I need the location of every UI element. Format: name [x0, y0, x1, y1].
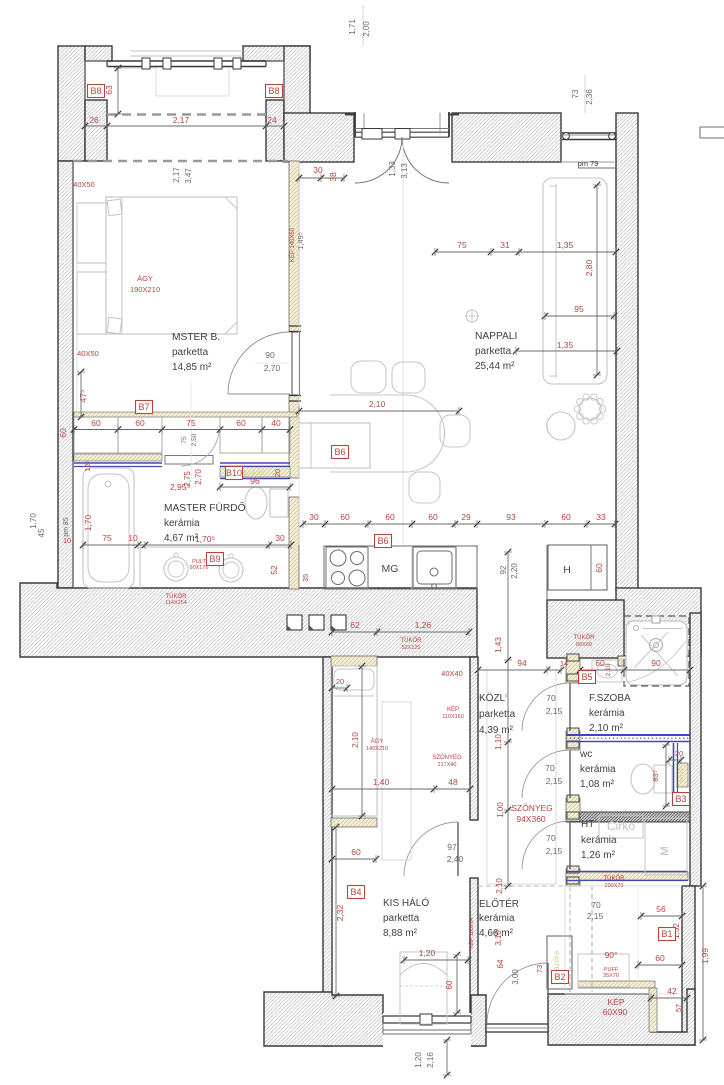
svg-text:60: 60 [91, 418, 101, 428]
svg-text:96: 96 [250, 476, 260, 486]
svg-text:140X210: 140X210 [366, 746, 388, 752]
svg-text:38: 38 [328, 172, 338, 182]
svg-text:MSTER B.: MSTER B. [172, 332, 220, 343]
svg-text:B2: B2 [554, 972, 565, 982]
svg-text:parketta: parketta [172, 347, 209, 358]
svg-text:64: 64 [496, 959, 505, 968]
svg-text:B5: B5 [581, 672, 592, 682]
svg-text:14: 14 [560, 659, 568, 668]
svg-text:60: 60 [561, 512, 571, 522]
svg-text:57: 57 [674, 1004, 683, 1012]
svg-text:60: 60 [351, 847, 361, 857]
svg-text:KÖZLⁱ: KÖZLⁱ [479, 692, 507, 704]
svg-text:83⁵: 83⁵ [651, 770, 660, 781]
svg-text:tartály: tartály [679, 767, 685, 782]
svg-text:2,40: 2,40 [447, 854, 464, 864]
svg-text:75: 75 [181, 436, 188, 444]
svg-text:2,15: 2,15 [587, 911, 604, 921]
svg-text:2,32: 2,32 [335, 904, 345, 921]
svg-text:2,70: 2,70 [264, 363, 281, 373]
svg-text:2,10: 2,10 [495, 878, 504, 894]
svg-text:KÉP 100X64: KÉP 100X64 [468, 917, 475, 948]
svg-text:1,99: 1,99 [701, 948, 710, 964]
svg-text:97: 97 [447, 842, 457, 852]
svg-text:1,40: 1,40 [373, 777, 390, 787]
svg-text:1,49⁵: 1,49⁵ [296, 232, 305, 250]
svg-text:pm 85: pm 85 [63, 517, 70, 537]
svg-text:60: 60 [428, 512, 438, 522]
svg-text:2,15: 2,15 [546, 846, 563, 856]
svg-text:MG: MG [382, 563, 399, 575]
svg-text:60: 60 [655, 953, 665, 963]
svg-text:3,00: 3,00 [511, 969, 520, 985]
svg-text:SZŐNYEG: SZŐNYEG [511, 803, 553, 813]
svg-text:52: 52 [269, 565, 279, 575]
svg-text:parketta: parketta [383, 913, 420, 924]
svg-text:2,10: 2,10 [369, 399, 386, 409]
svg-text:90: 90 [265, 350, 275, 360]
svg-text:33: 33 [596, 512, 606, 522]
svg-text:200X70: 200X70 [605, 883, 624, 889]
svg-text:kerámia: kerámia [479, 913, 515, 924]
svg-text:92: 92 [499, 565, 508, 574]
svg-text:20: 20 [273, 469, 282, 477]
svg-text:TÜKÖR: TÜKÖR [574, 634, 596, 641]
svg-text:2,17: 2,17 [173, 115, 190, 125]
svg-text:20: 20 [675, 749, 683, 758]
svg-text:40: 40 [271, 418, 281, 428]
svg-text:B6: B6 [377, 536, 388, 546]
svg-text:2,70: 2,70 [194, 469, 203, 485]
svg-text:1,35: 1,35 [557, 340, 574, 350]
svg-text:1,70: 1,70 [83, 514, 93, 531]
svg-text:1,35: 1,35 [557, 240, 574, 250]
svg-text:gipszkart.: gipszkart. [240, 471, 266, 477]
svg-text:TÜKÖR: TÜKÖR [401, 637, 423, 644]
svg-text:parketta: parketta [475, 346, 512, 357]
svg-text:70: 70 [591, 900, 601, 910]
svg-text:2,36: 2,36 [585, 89, 594, 105]
svg-text:2,10: 2,10 [605, 663, 612, 676]
svg-text:ELŐTÉR: ELŐTÉR [479, 896, 519, 910]
svg-text:62: 62 [350, 620, 360, 630]
svg-text:kerámia: kerámia [164, 518, 200, 529]
svg-text:60X90: 60X90 [603, 1007, 628, 1017]
svg-text:B6: B6 [334, 447, 345, 457]
svg-text:kerámia: kerámia [581, 835, 617, 846]
svg-text:73: 73 [571, 89, 580, 98]
svg-text:35: 35 [301, 574, 310, 582]
svg-text:42: 42 [667, 986, 677, 996]
svg-text:1,20: 1,20 [419, 948, 436, 958]
svg-text:HT: HT [581, 819, 594, 830]
svg-text:KÉP: KÉP [607, 997, 624, 1007]
svg-text:B3: B3 [675, 794, 686, 804]
svg-text:52X125: 52X125 [402, 645, 421, 651]
svg-text:1,08 m²: 1,08 m² [580, 779, 615, 790]
svg-text:26: 26 [89, 115, 99, 125]
svg-text:94X360: 94X360 [516, 814, 546, 824]
svg-text:35X70: 35X70 [603, 973, 619, 979]
svg-text:20: 20 [336, 677, 344, 686]
svg-text:10: 10 [63, 536, 71, 545]
svg-text:25,44 m²: 25,44 m² [475, 361, 515, 372]
svg-text:ÁGY: ÁGY [137, 274, 153, 283]
svg-text:4,66 m²: 4,66 m² [479, 928, 514, 939]
svg-text:80X60: 80X60 [576, 642, 592, 648]
svg-text:217X40: 217X40 [438, 762, 457, 768]
svg-text:F.SZOBA: F.SZOBA [589, 693, 631, 704]
svg-text:8,88 m²: 8,88 m² [383, 928, 418, 939]
svg-text:ÁGY: ÁGY [371, 738, 384, 745]
svg-text:40X40: 40X40 [441, 669, 463, 678]
svg-text:2,10 m²: 2,10 m² [589, 723, 624, 734]
svg-text:2,15: 2,15 [546, 776, 563, 786]
svg-text:60: 60 [595, 658, 605, 668]
svg-text:KÉP 140X60: KÉP 140X60 [289, 227, 296, 262]
svg-text:KÉP: KÉP [447, 706, 459, 713]
svg-text:1,70⁵: 1,70⁵ [195, 534, 215, 544]
svg-text:1,26: 1,26 [415, 620, 432, 630]
svg-text:73: 73 [535, 965, 544, 973]
svg-text:70: 70 [546, 833, 556, 843]
svg-text:2,50: 2,50 [191, 433, 198, 446]
svg-text:2,17: 2,17 [172, 167, 181, 183]
svg-text:110X160: 110X160 [442, 714, 464, 720]
svg-text:wc: wc [579, 749, 592, 760]
svg-text:B9: B9 [209, 554, 220, 564]
svg-text:NAPPALI: NAPPALI [475, 331, 517, 342]
svg-text:75: 75 [457, 240, 467, 250]
svg-text:B10: B10 [226, 468, 242, 478]
svg-text:29: 29 [461, 512, 471, 522]
svg-text:SZŐNYEG: SZŐNYEG [432, 754, 462, 761]
svg-text:B7: B7 [138, 402, 149, 412]
svg-text:90°: 90° [605, 950, 618, 960]
svg-text:60: 60 [385, 512, 395, 522]
svg-text:47⁵: 47⁵ [78, 390, 88, 403]
svg-text:70: 70 [546, 693, 556, 703]
svg-text:63: 63 [104, 85, 114, 95]
svg-text:1,26 m²: 1,26 m² [581, 850, 616, 861]
svg-text:B4: B4 [350, 887, 361, 897]
svg-text:4,39 m²: 4,39 m² [479, 725, 514, 736]
svg-text:H: H [563, 564, 571, 576]
svg-text:kerámia: kerámia [580, 764, 616, 775]
svg-text:60: 60 [445, 980, 454, 989]
svg-text:1,10: 1,10 [494, 734, 503, 750]
svg-text:KIS HÁLÓ: KIS HÁLÓ [383, 896, 429, 909]
svg-text:parketta: parketta [479, 709, 516, 720]
svg-text:kerámia: kerámia [589, 708, 625, 719]
svg-text:B8: B8 [90, 86, 101, 96]
svg-text:30: 30 [313, 165, 323, 175]
svg-text:56: 56 [656, 904, 666, 914]
svg-text:24: 24 [267, 115, 277, 125]
svg-text:60: 60 [58, 428, 68, 438]
svg-text:31: 31 [500, 240, 510, 250]
svg-text:2,15: 2,15 [546, 706, 563, 716]
svg-text:1,00: 1,00 [496, 802, 505, 818]
svg-text:2,16: 2,16 [426, 1052, 435, 1068]
svg-text:40X50: 40X50 [77, 349, 99, 358]
svg-text:45: 45 [37, 528, 46, 537]
svg-text:93: 93 [506, 512, 516, 522]
svg-text:95: 95 [574, 304, 584, 314]
svg-text:2,00: 2,00 [362, 21, 371, 37]
svg-text:1,71: 1,71 [348, 19, 357, 35]
svg-text:B8: B8 [268, 86, 279, 96]
svg-text:pm 79: pm 79 [578, 159, 599, 168]
svg-text:70: 70 [545, 763, 555, 773]
svg-text:114X254: 114X254 [165, 600, 187, 606]
svg-text:4,67 m²: 4,67 m² [164, 533, 199, 544]
svg-text:3,47: 3,47 [184, 168, 193, 184]
svg-text:B1: B1 [661, 929, 672, 939]
svg-text:2,75: 2,75 [183, 471, 192, 487]
svg-text:90: 90 [651, 658, 661, 668]
svg-text:60: 60 [236, 418, 246, 428]
svg-text:1,70: 1,70 [29, 513, 38, 529]
svg-text:1,43: 1,43 [494, 637, 503, 653]
svg-text:2,10: 2,10 [351, 732, 360, 748]
svg-text:190X210: 190X210 [130, 285, 160, 294]
svg-text:1,33: 1,33 [388, 161, 397, 177]
svg-text:12⁵: 12⁵ [83, 460, 92, 471]
svg-text:14,85 m²: 14,85 m² [172, 362, 212, 373]
svg-text:MASTER FÜRDŐ: MASTER FÜRDŐ [164, 500, 246, 514]
svg-text:48: 48 [448, 777, 458, 787]
svg-text:TÜKÖR: TÜKÖR [166, 593, 188, 600]
svg-text:40X50: 40X50 [73, 180, 95, 189]
svg-text:1,20: 1,20 [414, 1052, 423, 1068]
svg-text:Cirko: Cirko [607, 819, 635, 833]
svg-text:90X176: 90X176 [190, 565, 209, 571]
svg-text:10: 10 [128, 533, 138, 543]
svg-text:60: 60 [340, 512, 350, 522]
svg-text:75: 75 [186, 418, 196, 428]
svg-text:30: 30 [275, 533, 285, 543]
svg-text:60: 60 [594, 563, 604, 573]
svg-text:TÜKÖR: TÜKÖR [604, 875, 626, 882]
svg-text:94: 94 [517, 658, 527, 668]
svg-text:75: 75 [102, 533, 112, 543]
svg-text:M: M [659, 846, 671, 855]
svg-text:60: 60 [135, 418, 145, 428]
svg-text:2,80: 2,80 [584, 259, 594, 276]
svg-text:3,13: 3,13 [400, 163, 409, 179]
svg-text:30: 30 [309, 512, 319, 522]
svg-text:2,20: 2,20 [510, 563, 519, 579]
